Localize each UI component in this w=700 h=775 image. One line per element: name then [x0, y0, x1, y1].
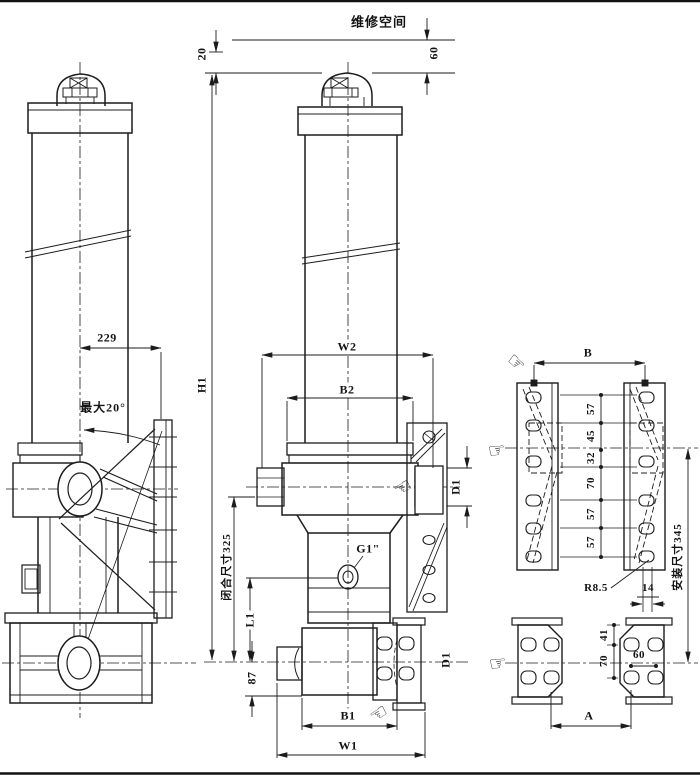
base-pin-boss: [58, 636, 100, 690]
chain-57c: 57: [585, 536, 597, 548]
dim-h1: H1: [195, 377, 210, 393]
dim-60-top: 60: [427, 47, 442, 60]
dim-60-bottom: 60: [633, 649, 645, 661]
dim-w1: W1: [337, 739, 360, 754]
base-top-plate: [5, 613, 157, 623]
dim-229: 229: [97, 331, 117, 346]
max-angle-label: 最大20°: [80, 399, 126, 416]
slot-width-label: 14: [642, 582, 654, 594]
install-length-label: 安装尺寸345: [669, 523, 685, 591]
port-label: G1": [356, 542, 380, 557]
dim-70: 70: [598, 655, 610, 667]
swing-arc: [84, 430, 160, 445]
slot-radius-label: R8.5: [584, 582, 608, 594]
left-view-centerlines: [2, 62, 196, 718]
left-side-view: [2, 62, 196, 718]
base-block-front: [302, 628, 377, 695]
bolt-3: [423, 594, 435, 603]
dim-d1-pin: D1: [449, 479, 464, 495]
bolt-1: [423, 536, 435, 545]
maintenance-space-label: 维修空间: [351, 12, 407, 31]
collar-front: [298, 107, 402, 135]
head-flange: [287, 443, 413, 455]
dim-w2: W2: [336, 340, 359, 355]
chain-57a: 57: [585, 403, 597, 415]
chain-32: 32: [585, 452, 597, 464]
lower-plate-right: [620, 625, 664, 697]
pointer-hand-icon: ☞: [488, 653, 509, 675]
drawing-canvas: 维修空间 60 20 229 最大20° H1 W2 B2 D1 闭合尺寸325…: [0, 0, 700, 775]
dim-87: 87: [245, 670, 260, 687]
dim-b: B: [584, 346, 593, 361]
base-slots: [377, 637, 414, 680]
bracket-lower-edge: [61, 523, 155, 610]
gusset-lines: [94, 469, 157, 533]
dim-b1: B1: [338, 709, 357, 724]
chain-45: 45: [585, 430, 597, 442]
dim-b2: B2: [337, 383, 356, 398]
trunnion-boss: [58, 462, 102, 516]
lower-plate-left: [518, 625, 562, 697]
lower-left-slots: [521, 638, 559, 684]
pointer-hand-icon: ☞: [487, 440, 508, 462]
rod-end-dome: [57, 74, 105, 106]
base-pin-front: [277, 647, 302, 680]
dim-a: A: [584, 709, 593, 724]
chain-70: 70: [585, 477, 597, 489]
closed-length-label: 闭合尺寸325: [218, 533, 234, 601]
dim-d1-hole: D1: [439, 652, 454, 668]
dim-20: 20: [195, 48, 210, 61]
dim-41: 41: [598, 629, 610, 641]
dim-l1: L1: [243, 610, 258, 629]
lower-right-slots: [624, 638, 663, 684]
chain-57b: 57: [585, 508, 597, 520]
mount-plate-edge: [154, 420, 172, 618]
